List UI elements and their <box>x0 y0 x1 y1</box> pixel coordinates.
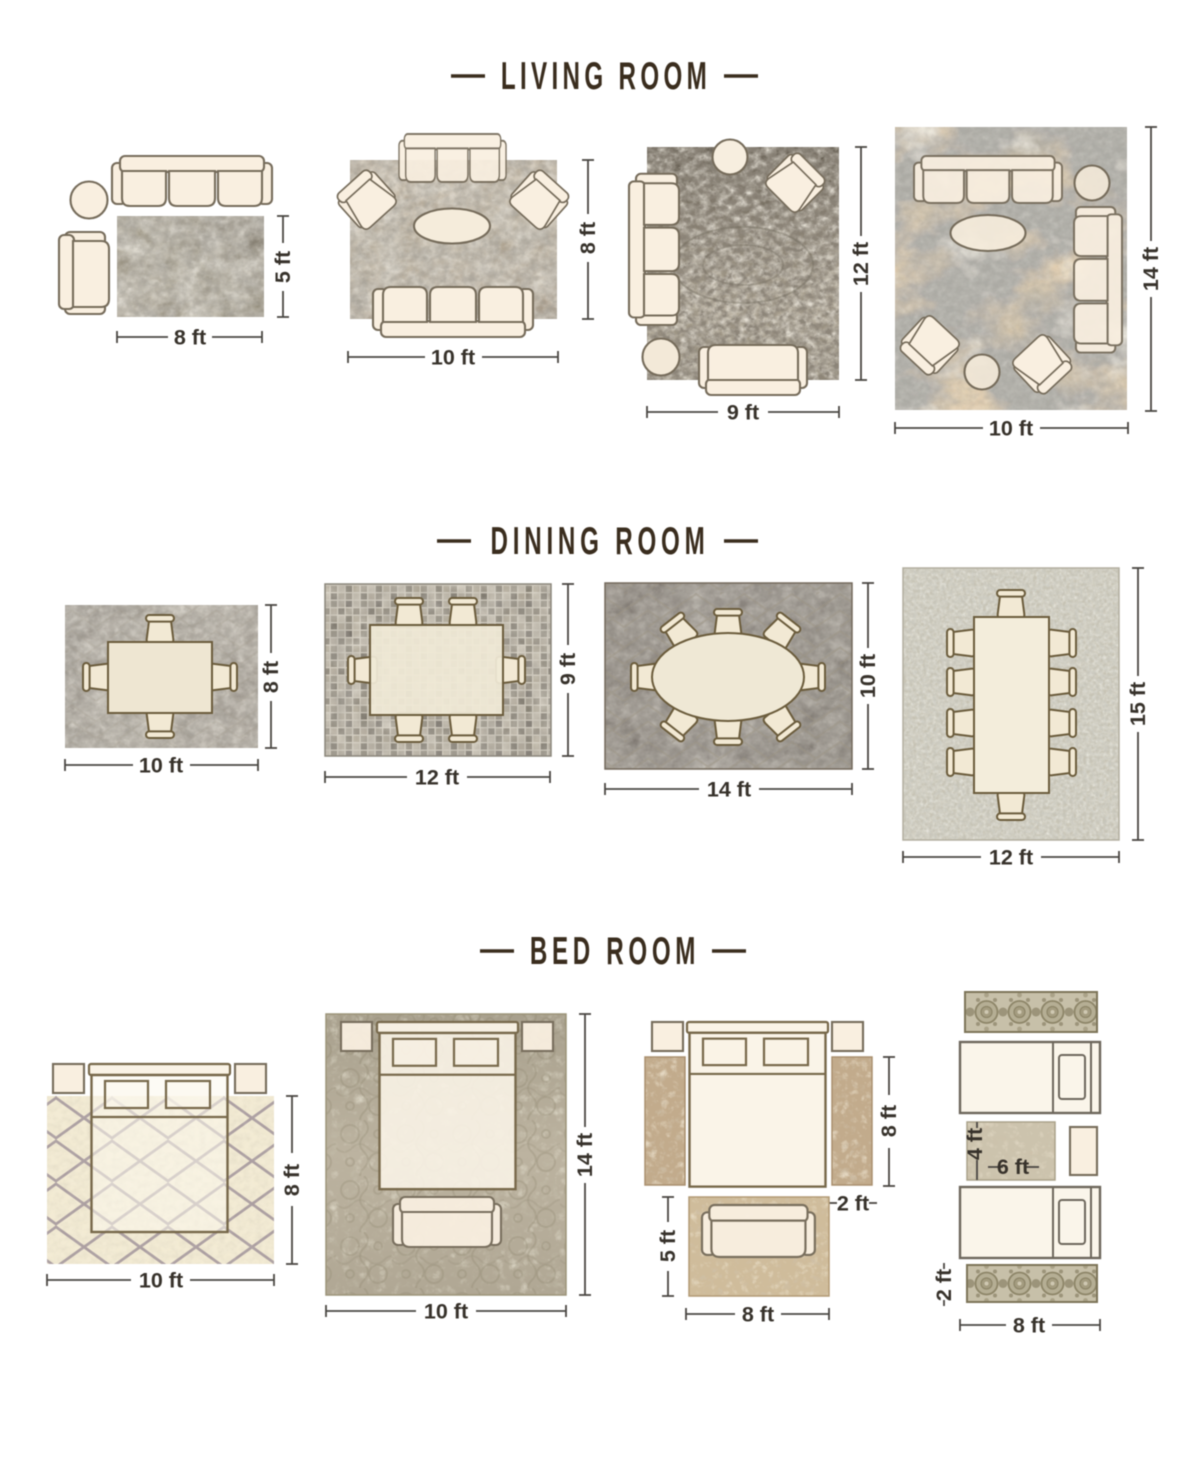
svg-text:10 ft: 10 ft <box>431 346 475 370</box>
svg-text:8 ft: 8 ft <box>742 1303 774 1327</box>
svg-text:8 ft: 8 ft <box>576 222 600 254</box>
svg-text:4 ft: 4 ft <box>963 1128 987 1160</box>
svg-text:15 ft: 15 ft <box>1126 682 1150 726</box>
svg-text:10 ft: 10 ft <box>139 1269 183 1293</box>
svg-text:12 ft: 12 ft <box>849 242 873 286</box>
svg-text:10 ft: 10 ft <box>424 1300 468 1324</box>
svg-text:9 ft: 9 ft <box>727 401 759 425</box>
svg-text:2 ft: 2 ft <box>932 1269 956 1301</box>
svg-text:5 ft: 5 ft <box>656 1230 680 1262</box>
svg-text:6 ft: 6 ft <box>997 1155 1029 1179</box>
svg-text:14 ft: 14 ft <box>1139 247 1163 291</box>
svg-text:9 ft: 9 ft <box>556 653 580 685</box>
svg-text:8 ft: 8 ft <box>877 1105 901 1137</box>
svg-text:BED ROOM: BED ROOM <box>530 929 700 972</box>
svg-text:14 ft: 14 ft <box>573 1133 597 1177</box>
svg-text:12 ft: 12 ft <box>415 766 459 790</box>
svg-text:8 ft: 8 ft <box>259 661 283 693</box>
svg-text:12 ft: 12 ft <box>989 846 1033 870</box>
svg-text:5 ft: 5 ft <box>271 251 295 283</box>
svg-text:2 ft: 2 ft <box>837 1192 869 1216</box>
svg-text:8 ft: 8 ft <box>174 326 206 350</box>
svg-text:10 ft: 10 ft <box>139 754 183 778</box>
svg-text:LIVING ROOM: LIVING ROOM <box>501 54 711 97</box>
svg-text:DINING ROOM: DINING ROOM <box>490 519 709 562</box>
svg-text:10 ft: 10 ft <box>856 654 880 698</box>
svg-text:8 ft: 8 ft <box>1013 1314 1045 1338</box>
svg-text:14 ft: 14 ft <box>707 778 751 802</box>
svg-text:8 ft: 8 ft <box>280 1164 304 1196</box>
svg-text:10 ft: 10 ft <box>989 417 1033 441</box>
